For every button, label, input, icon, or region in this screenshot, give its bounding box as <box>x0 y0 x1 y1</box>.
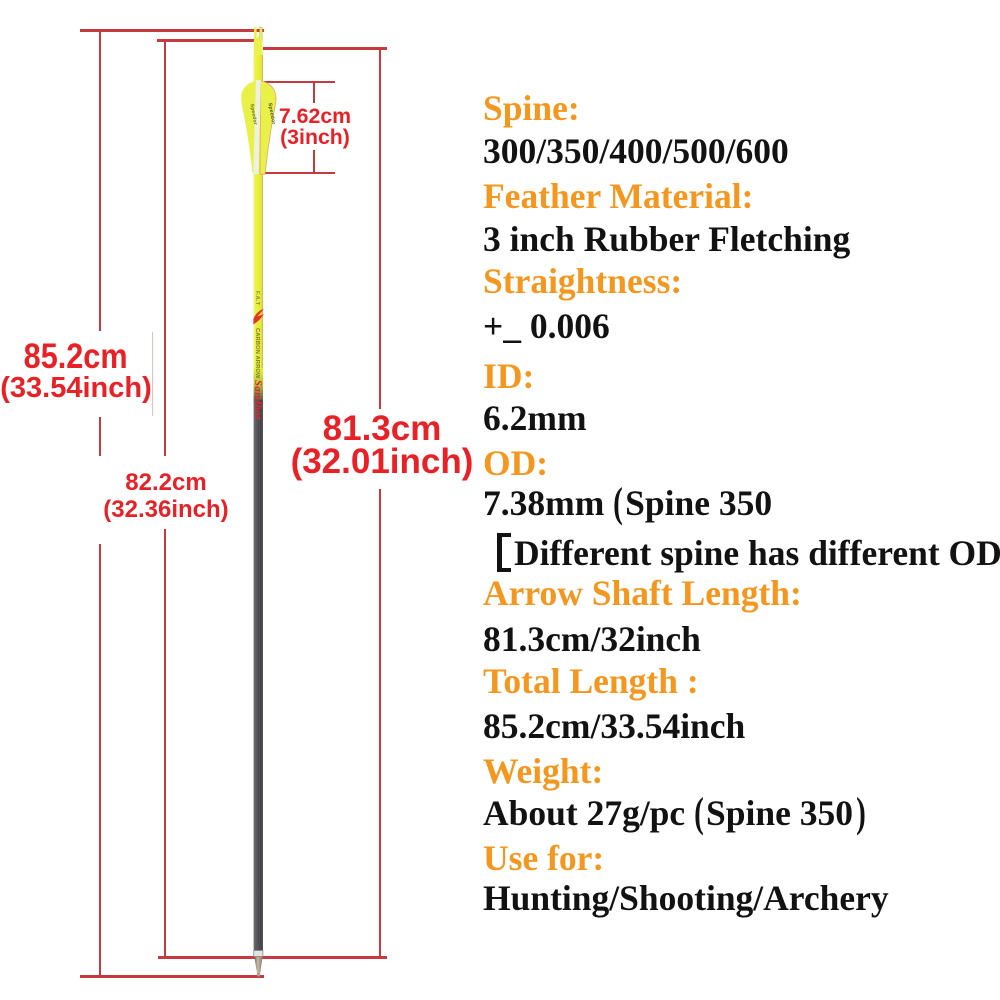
svg-text:F.A.T: F.A.T <box>254 291 260 306</box>
svg-text:CARBON ARROW: CARBON ARROW <box>254 328 260 379</box>
svg-text:Sandbar: Sandbar <box>252 380 263 421</box>
